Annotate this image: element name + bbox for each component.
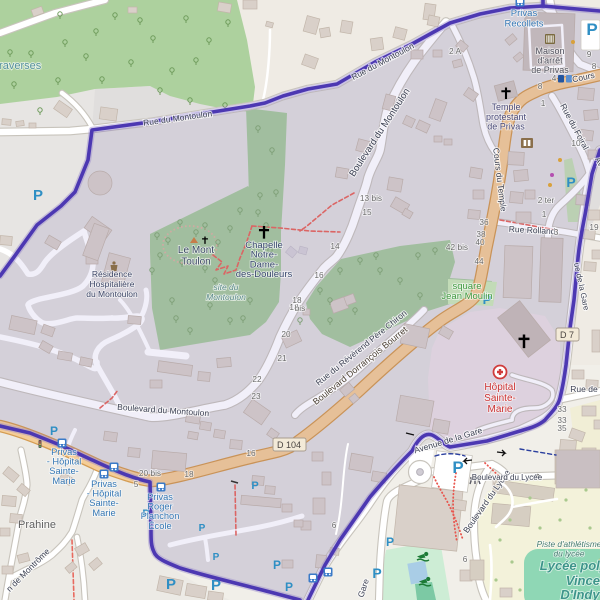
svg-text:Sainte-: Sainte- — [49, 466, 78, 476]
svg-text:Roger: Roger — [147, 502, 172, 512]
svg-text:de Privas: de Privas — [531, 65, 569, 75]
svg-text:D 7: D 7 — [560, 330, 574, 340]
svg-text:du lycée: du lycée — [554, 549, 585, 559]
svg-text:P: P — [50, 424, 58, 438]
svg-text:Privas: Privas — [511, 8, 538, 19]
svg-text:Sainte-: Sainte- — [89, 498, 118, 508]
svg-text:36: 36 — [479, 217, 489, 227]
svg-text:Résidence: Résidence — [92, 269, 132, 279]
svg-text:8: 8 — [538, 81, 543, 91]
svg-text:Marie: Marie — [52, 476, 75, 486]
svg-text:33: 33 — [557, 404, 567, 414]
svg-text:1: 1 — [541, 98, 546, 108]
svg-text:du Montoulon: du Montoulon — [86, 289, 138, 299]
svg-text:Montoulon: Montoulon — [206, 292, 246, 302]
svg-text:2 A: 2 A — [449, 46, 461, 56]
svg-text:Planchon: Planchon — [141, 511, 180, 521]
svg-text:Privas: Privas — [91, 479, 117, 489]
svg-text:D'Indy: D'Indy — [560, 587, 600, 600]
svg-text:18: 18 — [184, 469, 194, 479]
svg-text:35: 35 — [557, 423, 567, 433]
svg-text:6: 6 — [332, 520, 337, 530]
svg-text:P: P — [372, 565, 381, 581]
svg-text:Marie: Marie — [92, 508, 115, 518]
svg-text:Sainte-: Sainte- — [484, 393, 516, 404]
svg-text:des-Douleurs: des-Douleurs — [236, 269, 293, 280]
svg-text:9: 9 — [587, 49, 592, 59]
svg-text:16: 16 — [314, 270, 324, 280]
svg-text:P: P — [211, 577, 221, 594]
svg-text:42 bis: 42 bis — [446, 242, 468, 252]
svg-text:8: 8 — [592, 61, 597, 71]
svg-text:traverses: traverses — [0, 60, 42, 72]
svg-text:de Privas: de Privas — [487, 122, 525, 132]
svg-text:Piste d'athlétisme: Piste d'athlétisme — [537, 539, 600, 549]
svg-text:Privas: Privas — [51, 447, 77, 457]
svg-text:Maison: Maison — [535, 46, 564, 56]
svg-text:P: P — [566, 174, 575, 190]
svg-text:Le Mont: Le Mont — [178, 245, 214, 256]
svg-text:Boulevard du Lycée: Boulevard du Lycée — [472, 473, 543, 482]
svg-text:- Hôpital: - Hôpital — [87, 489, 122, 499]
svg-text:3: 3 — [554, 227, 559, 237]
svg-text:4: 4 — [552, 73, 557, 83]
svg-text:Marie: Marie — [487, 404, 512, 415]
svg-text:44: 44 — [474, 256, 484, 266]
svg-text:10: 10 — [571, 138, 581, 148]
svg-text:21: 21 — [277, 353, 287, 363]
svg-text:Hospitalière: Hospitalière — [90, 279, 135, 289]
svg-text:20: 20 — [281, 329, 291, 339]
svg-text:P: P — [285, 580, 293, 594]
svg-text:École: École — [148, 521, 171, 531]
svg-text:D 104: D 104 — [277, 440, 301, 450]
svg-text:P: P — [213, 552, 220, 563]
svg-text:Hôpital: Hôpital — [484, 382, 515, 393]
svg-text:- Hôpital: - Hôpital — [47, 457, 82, 467]
svg-text:14: 14 — [330, 241, 340, 251]
svg-text:P: P — [386, 535, 394, 549]
svg-text:5: 5 — [134, 479, 139, 489]
svg-text:P: P — [33, 187, 43, 204]
svg-text:Toulon: Toulon — [181, 257, 210, 268]
svg-text:Vincent: Vincent — [566, 573, 600, 588]
svg-text:Recollets: Recollets — [504, 19, 543, 30]
svg-text:Privas: Privas — [147, 492, 173, 502]
svg-text:P: P — [199, 523, 206, 534]
svg-text:19: 19 — [589, 222, 599, 232]
svg-text:P: P — [586, 20, 597, 39]
svg-text:Lycée polyv: Lycée polyv — [540, 558, 600, 573]
svg-text:bis: bis — [295, 303, 306, 313]
svg-text:P: P — [273, 558, 281, 572]
svg-text:P: P — [166, 576, 176, 593]
svg-text:P: P — [452, 458, 463, 477]
svg-text:2 ter: 2 ter — [538, 195, 555, 205]
svg-text:40: 40 — [475, 237, 485, 247]
svg-text:20 bis: 20 bis — [139, 468, 161, 478]
svg-text:6: 6 — [463, 554, 468, 564]
svg-text:Prahine: Prahine — [18, 519, 56, 531]
svg-text:22: 22 — [252, 374, 262, 384]
svg-text:d'arrêt: d'arrêt — [537, 56, 563, 66]
svg-text:Rue de: Rue de — [570, 384, 598, 394]
svg-text:15: 15 — [362, 207, 372, 217]
svg-text:1: 1 — [542, 209, 547, 219]
svg-text:16: 16 — [246, 448, 256, 458]
svg-text:13 bis: 13 bis — [360, 193, 382, 203]
svg-text:Temple: Temple — [491, 102, 520, 112]
svg-text:site du: site du — [213, 282, 238, 292]
svg-text:Jean Moulin: Jean Moulin — [441, 291, 492, 302]
svg-text:protestant: protestant — [486, 112, 527, 122]
svg-text:23: 23 — [251, 391, 261, 401]
svg-text:P: P — [251, 480, 258, 492]
